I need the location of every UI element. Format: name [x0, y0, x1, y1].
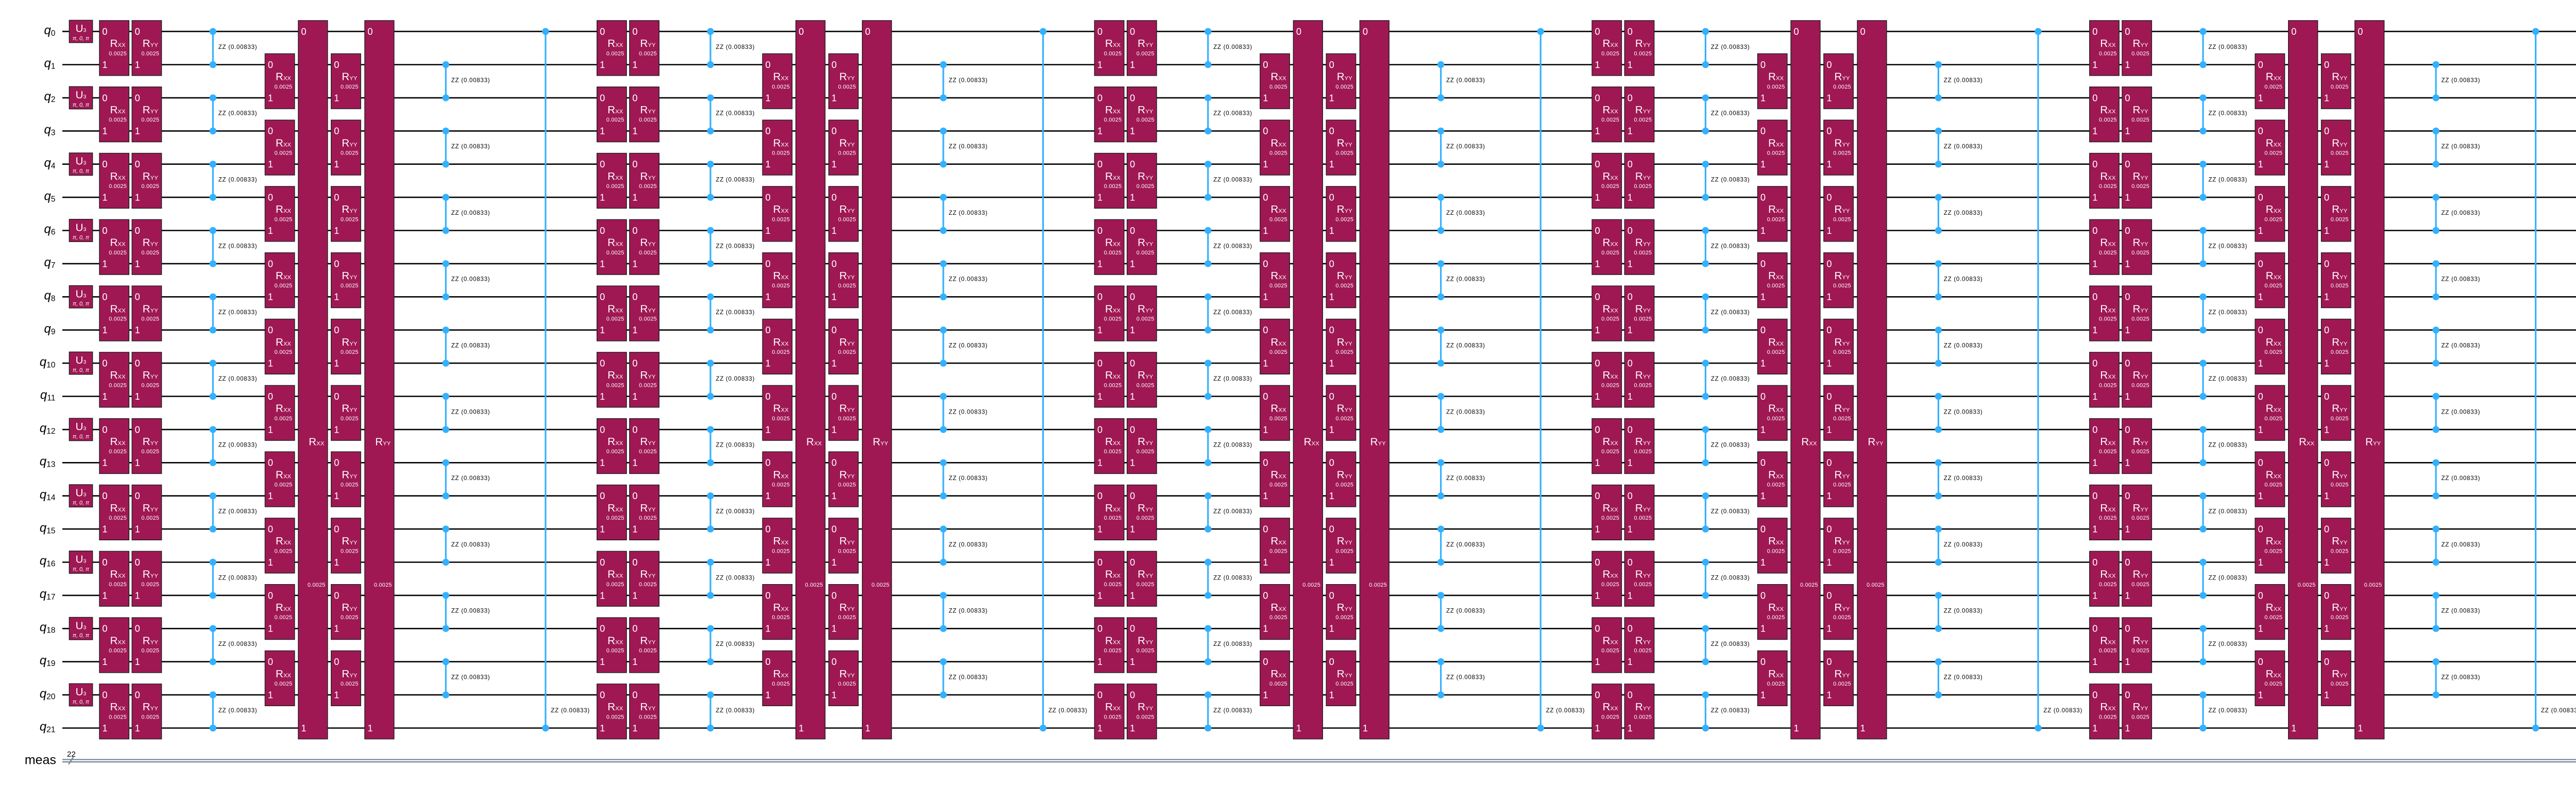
svg-text:q20: q20 [40, 687, 56, 701]
svg-text:q21: q21 [40, 720, 56, 734]
svg-text:q14: q14 [40, 488, 56, 502]
svg-text:q9: q9 [44, 322, 56, 336]
svg-text:q8: q8 [44, 289, 56, 303]
svg-text:q11: q11 [40, 388, 55, 403]
svg-text:q1: q1 [44, 57, 56, 71]
svg-text:q18: q18 [40, 621, 56, 635]
svg-text:q15: q15 [40, 521, 56, 535]
svg-text:q5: q5 [44, 189, 56, 203]
svg-text:q10: q10 [40, 355, 56, 369]
svg-text:q12: q12 [40, 421, 56, 436]
svg-text:q17: q17 [40, 587, 56, 602]
svg-text:q3: q3 [44, 123, 56, 138]
svg-text:q0: q0 [44, 23, 56, 38]
svg-text:q6: q6 [44, 223, 56, 237]
svg-text:q2: q2 [44, 90, 56, 104]
svg-text:q13: q13 [40, 455, 56, 469]
svg-text:meas: meas [25, 753, 56, 767]
svg-text:q4: q4 [44, 156, 56, 170]
svg-text:q16: q16 [40, 554, 56, 569]
svg-text:q7: q7 [44, 255, 56, 270]
svg-text:q19: q19 [40, 654, 56, 668]
svg-text:22: 22 [67, 750, 76, 759]
